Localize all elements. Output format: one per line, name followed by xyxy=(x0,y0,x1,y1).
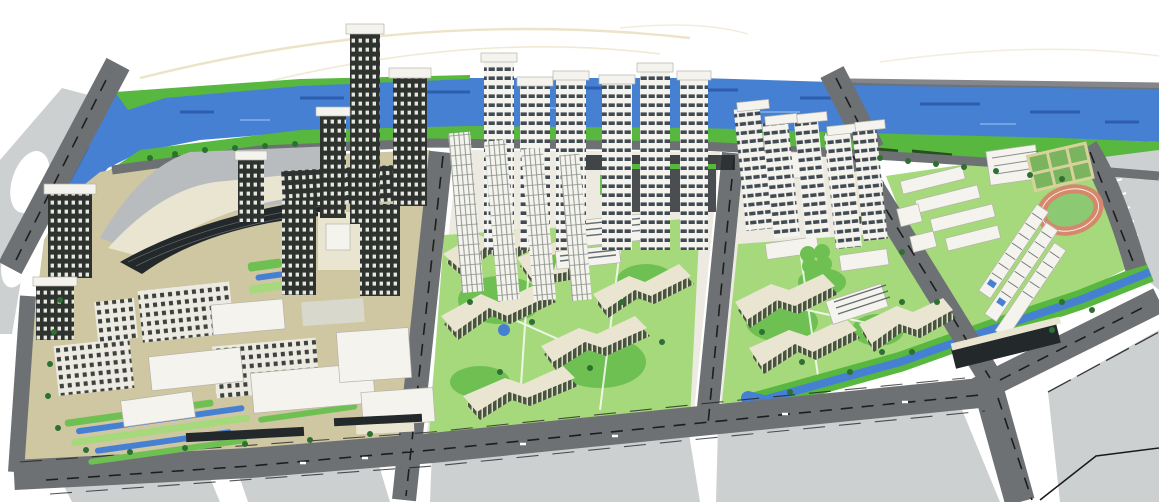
tree xyxy=(847,369,853,375)
supertall-tower xyxy=(350,32,380,224)
tree xyxy=(182,445,188,451)
tree xyxy=(1027,172,1033,178)
tree xyxy=(993,168,999,174)
tree xyxy=(787,389,793,395)
tree xyxy=(242,441,248,447)
tree xyxy=(262,143,268,149)
tree xyxy=(1059,176,1065,182)
tower-cap xyxy=(235,151,267,160)
podium-box xyxy=(336,328,411,383)
tree xyxy=(961,164,967,170)
tree xyxy=(172,151,178,157)
tree xyxy=(47,361,53,367)
tree xyxy=(909,349,915,355)
office-tower xyxy=(393,76,427,206)
podium-box xyxy=(301,298,365,326)
residential-tower xyxy=(680,78,708,250)
slab-tower-west xyxy=(48,192,92,278)
office-tower xyxy=(320,114,346,218)
tree xyxy=(307,437,313,443)
tree xyxy=(232,145,238,151)
waffle-slab xyxy=(94,298,138,342)
tree xyxy=(51,329,57,335)
tree xyxy=(934,299,940,305)
flower-lawn xyxy=(816,256,832,272)
podium-box xyxy=(211,299,285,335)
residential-tower xyxy=(602,82,632,250)
courtyard-pond xyxy=(498,324,510,336)
sketch-arc xyxy=(880,49,1159,62)
tree xyxy=(57,297,63,303)
tree xyxy=(619,299,625,305)
tree xyxy=(905,158,911,164)
tree xyxy=(877,155,883,161)
office-tower-low xyxy=(238,158,264,222)
far-bank-road xyxy=(850,82,1159,86)
masterplan-rendering xyxy=(0,0,1159,502)
masterplan-canvas xyxy=(0,0,1159,502)
tower-cap xyxy=(33,277,77,286)
tree xyxy=(1089,307,1095,313)
tree xyxy=(467,299,473,305)
tree xyxy=(55,425,61,431)
tree xyxy=(659,339,665,345)
tree xyxy=(933,161,939,167)
tower-cap xyxy=(677,71,711,80)
tree xyxy=(1059,299,1065,305)
tower-cap xyxy=(517,77,553,86)
tree xyxy=(202,147,208,153)
tree xyxy=(292,141,298,147)
courtyard-pavilion xyxy=(326,224,350,250)
waffle-slab xyxy=(54,338,135,396)
tower-cap xyxy=(44,184,96,194)
tower-cap xyxy=(316,107,350,116)
tower-cap xyxy=(637,63,673,72)
tree xyxy=(799,359,805,365)
tree xyxy=(127,449,133,455)
leaning-tower-cluster xyxy=(734,99,888,249)
megablock-west-wing xyxy=(282,200,316,295)
flower-lawn xyxy=(802,258,818,274)
tree xyxy=(759,329,765,335)
tree xyxy=(1049,327,1055,333)
residential-tower xyxy=(640,70,670,250)
tower-cap xyxy=(481,53,517,62)
tree xyxy=(83,447,89,453)
tower-cap xyxy=(599,75,635,84)
tree xyxy=(879,349,885,355)
tree xyxy=(899,249,905,255)
tower-cap xyxy=(389,68,431,78)
tree xyxy=(899,299,905,305)
tree xyxy=(587,365,593,371)
tree xyxy=(45,393,51,399)
tree xyxy=(497,369,503,375)
tree xyxy=(147,155,153,161)
tower-cap xyxy=(346,24,384,34)
tree xyxy=(529,319,535,325)
tree xyxy=(367,431,373,437)
tower-cap xyxy=(553,71,589,80)
